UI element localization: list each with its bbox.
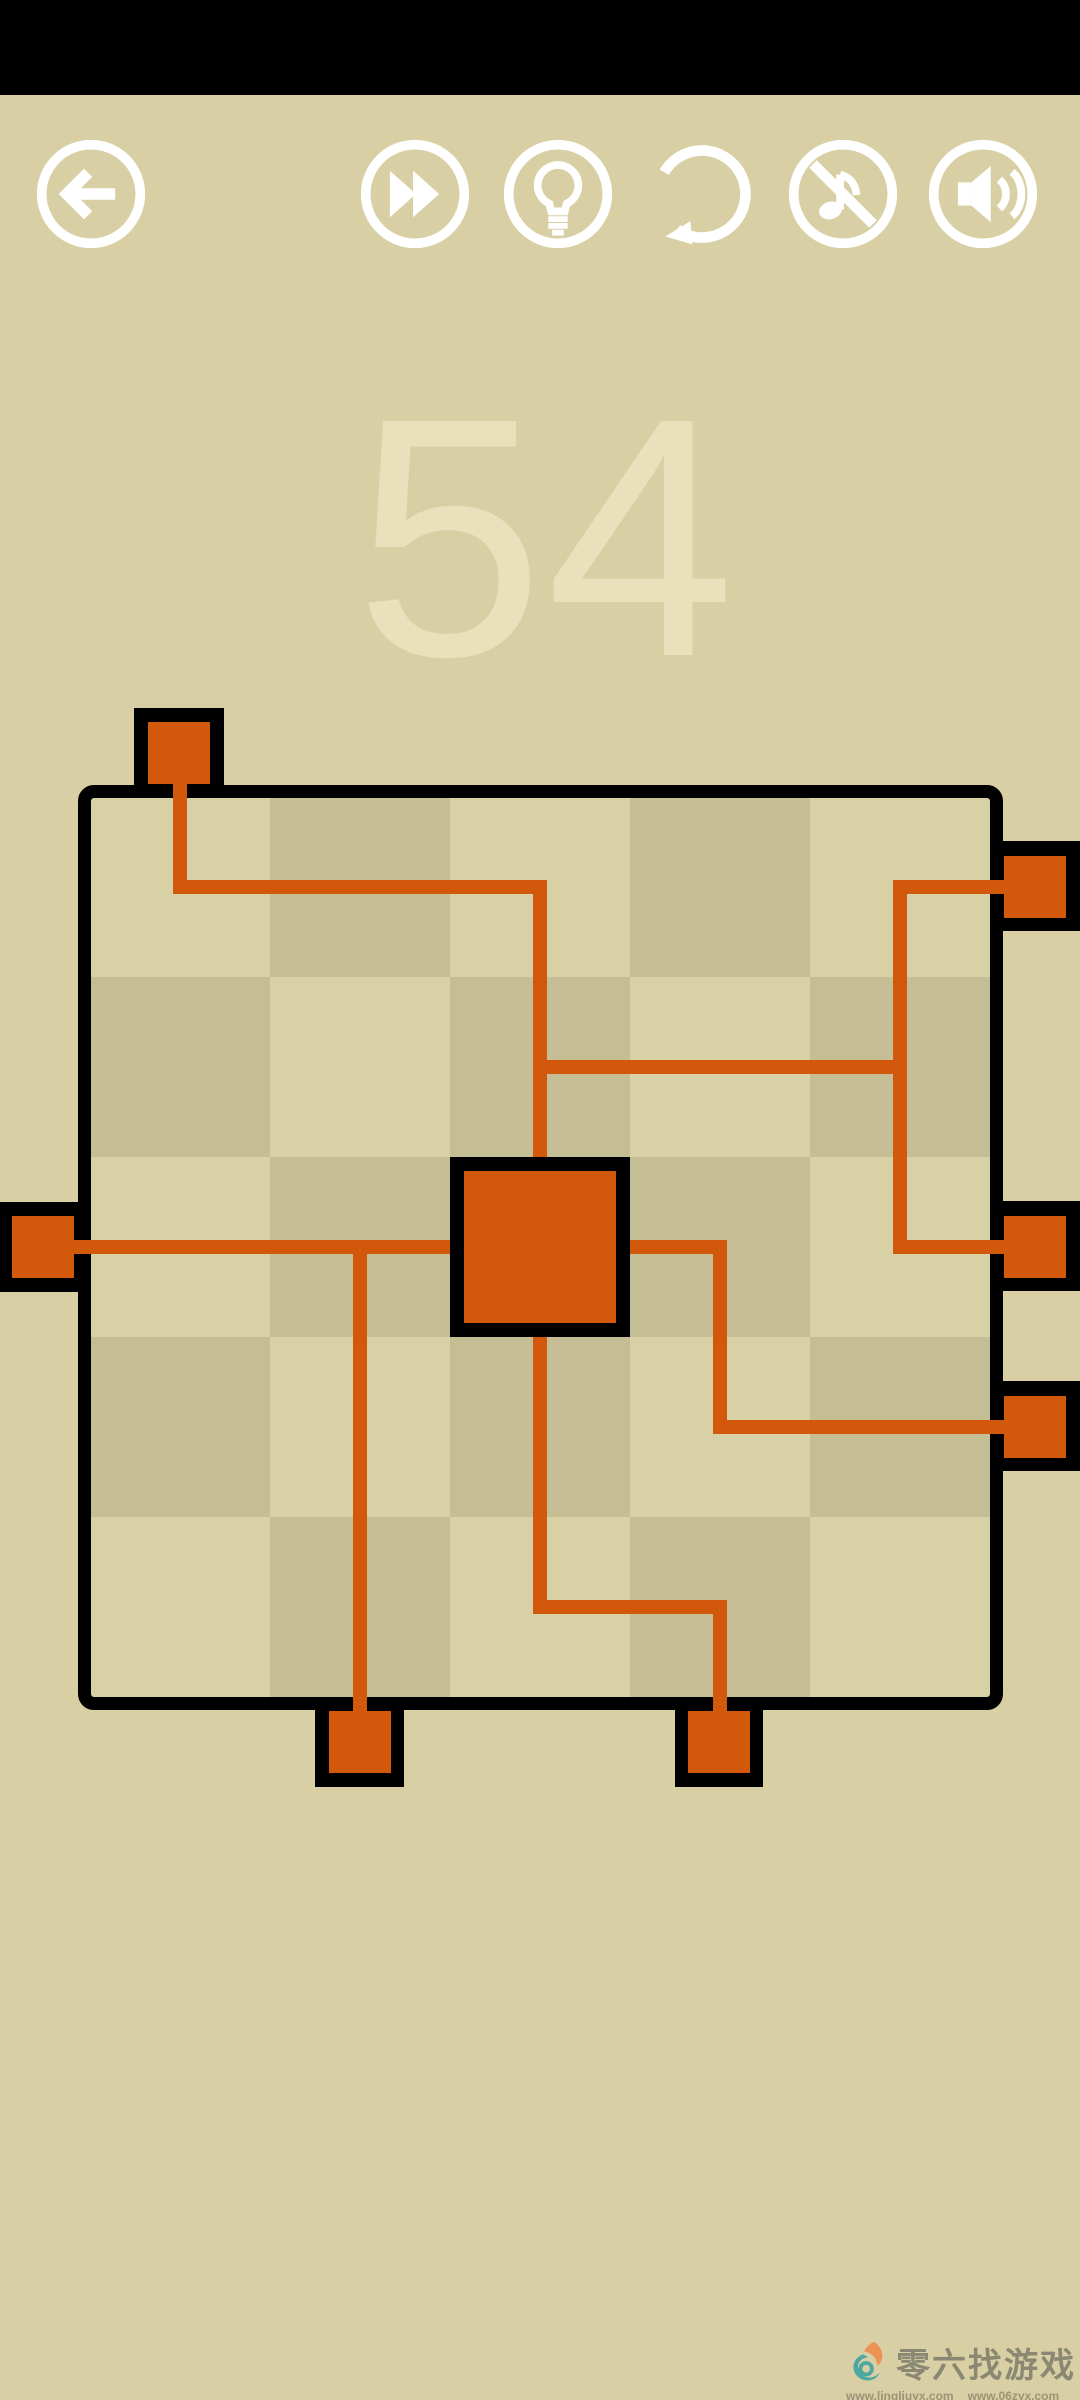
endpoint-square-top — [148, 722, 210, 784]
music-toggle-button[interactable] — [785, 136, 901, 252]
board-cell — [810, 1517, 990, 1697]
arrow-left-icon — [33, 136, 149, 252]
endpoint-square-right — [1004, 856, 1066, 918]
pipe-segment[interactable] — [533, 1330, 547, 1614]
fast-forward-icon — [357, 136, 473, 252]
endpoint-square-right — [1004, 1396, 1066, 1458]
pipe-segment[interactable] — [620, 1240, 727, 1254]
pipe-segment[interactable] — [893, 880, 907, 1254]
pipe-segment[interactable] — [713, 1420, 1010, 1434]
endpoint-square-bottom — [329, 1711, 391, 1773]
endpoint-square-left — [12, 1216, 74, 1278]
lightbulb-icon — [500, 136, 616, 252]
watermark-url-1: www.lingliuyx.com — [846, 2389, 954, 2400]
center-block[interactable] — [464, 1171, 616, 1323]
pipe-segment[interactable] — [893, 1240, 1010, 1254]
music-note-slash-icon — [785, 136, 901, 252]
pipe-segment[interactable] — [173, 780, 187, 894]
pipe-segment[interactable] — [533, 880, 547, 1164]
watermark-brand: 零六找游戏 — [896, 2338, 1076, 2387]
endpoint-square-bottom — [688, 1711, 750, 1773]
pipe-segment[interactable] — [533, 1600, 727, 1614]
fast-forward-button[interactable] — [357, 136, 473, 252]
sound-toggle-button[interactable] — [925, 136, 1041, 252]
back-button[interactable] — [33, 136, 149, 252]
speaker-icon — [925, 136, 1041, 252]
board-cell — [90, 977, 270, 1157]
level-number: 54 — [0, 368, 1080, 708]
endpoint-square-right — [1004, 1216, 1066, 1278]
pipe-segment[interactable] — [893, 880, 1010, 894]
board-cell — [90, 1337, 270, 1517]
status-bar — [0, 0, 1080, 95]
pipe-segment[interactable] — [533, 1060, 907, 1074]
pipe-segment[interactable] — [353, 1240, 367, 1718]
game-screen: 54 零六找游戏 www.lingliuyx.comwww.06zyx.com — [0, 0, 1080, 2400]
pipe-segment[interactable] — [66, 1240, 457, 1254]
watermark: 零六找游戏 www.lingliuyx.comwww.06zyx.com — [846, 2338, 1076, 2400]
pipe-segment[interactable] — [173, 880, 547, 894]
board-cell — [630, 797, 810, 977]
pipe-segment[interactable] — [713, 1600, 727, 1718]
hint-button[interactable] — [500, 136, 616, 252]
restart-button[interactable] — [644, 136, 760, 252]
watermark-url-2: www.06zyx.com — [968, 2389, 1060, 2400]
board-cell — [270, 977, 450, 1157]
watermark-logo-icon — [846, 2340, 892, 2386]
watermark-urls: www.lingliuyx.comwww.06zyx.com — [846, 2389, 1076, 2400]
pipe-segment[interactable] — [713, 1240, 727, 1434]
board-cell — [90, 1517, 270, 1697]
restart-arrow-icon — [644, 136, 760, 252]
